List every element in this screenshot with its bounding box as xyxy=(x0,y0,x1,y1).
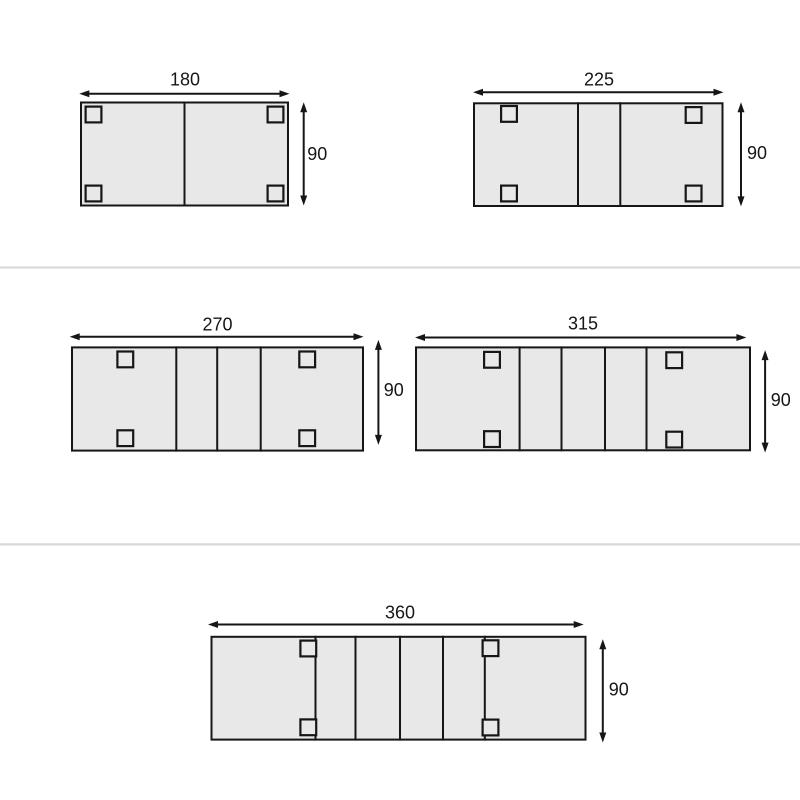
svg-text:360: 360 xyxy=(385,603,415,623)
svg-text:225: 225 xyxy=(584,70,614,90)
svg-text:90: 90 xyxy=(384,380,404,400)
svg-text:315: 315 xyxy=(568,314,598,334)
svg-text:90: 90 xyxy=(747,143,767,163)
svg-text:90: 90 xyxy=(771,390,791,410)
svg-text:90: 90 xyxy=(307,144,327,164)
svg-text:270: 270 xyxy=(202,314,232,334)
svg-text:90: 90 xyxy=(609,679,629,699)
svg-text:180: 180 xyxy=(170,70,200,90)
